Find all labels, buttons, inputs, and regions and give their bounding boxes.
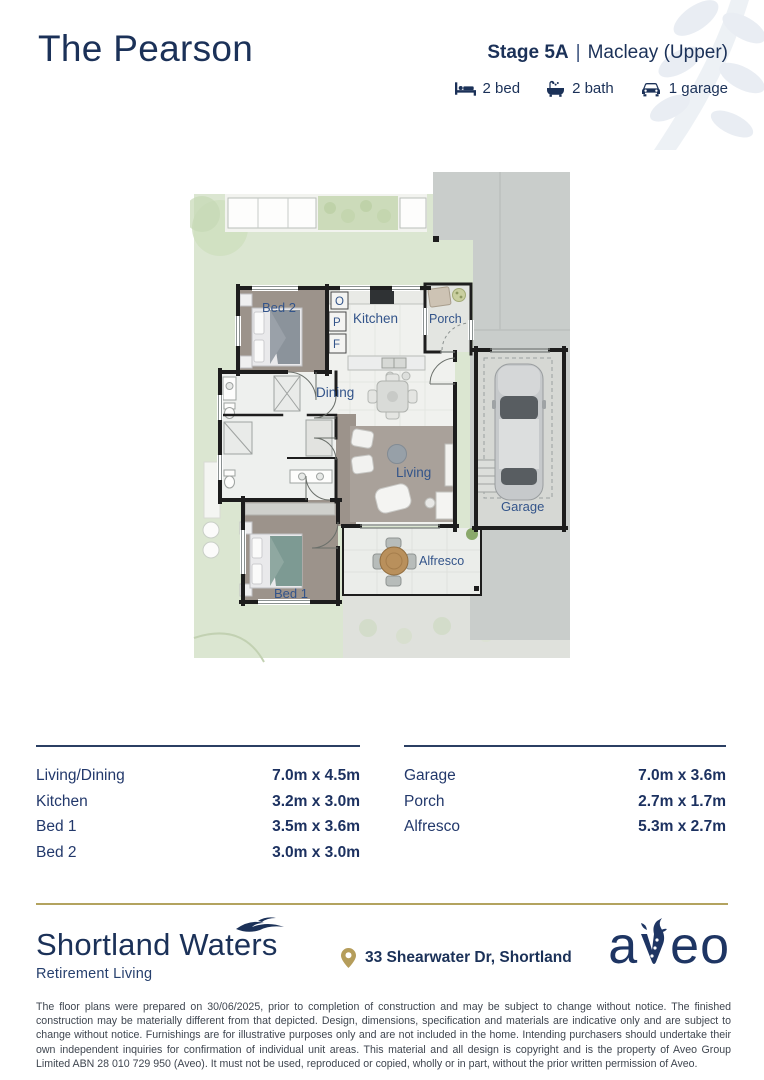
dim-size: 7.0m x 4.5m [272, 767, 360, 785]
stage-label: Stage 5A [487, 42, 568, 63]
dimensions-left-column: Living/Dining 7.0m x 4.5m Kitchen 3.2m x… [36, 745, 360, 869]
dim-size: 5.3m x 2.7m [638, 818, 726, 836]
floor-plan: Bed 2 Kitchen Porch Dining Living Bed 1 … [190, 170, 572, 666]
stage-variant-line: Stage 5A|Macleay (Upper) [487, 42, 728, 64]
car-icon [640, 81, 662, 97]
feature-bed-label: 2 bed [483, 80, 521, 97]
dim-room: Garage [404, 767, 456, 785]
dim-size: 3.2m x 3.0m [272, 793, 360, 811]
bed-icon [455, 81, 476, 97]
disclaimer-text: The floor plans were prepared on 30/06/2… [36, 1000, 731, 1071]
feature-bath-label: 2 bath [572, 80, 614, 97]
feature-garage: 1 garage [640, 80, 728, 97]
boundary-window [228, 198, 316, 228]
dim-row: Porch 2.7m x 1.7m [404, 793, 726, 819]
label-kitchen: Kitchen [353, 311, 398, 326]
feature-garage-label: 1 garage [669, 80, 728, 97]
variant-label: Macleay (Upper) [588, 42, 728, 63]
dim-room: Bed 1 [36, 818, 77, 836]
dimensions-right-column: Garage 7.0m x 3.6m Porch 2.7m x 1.7m Alf… [404, 745, 726, 844]
divider-rule [404, 745, 726, 747]
label-porch: Porch [429, 312, 462, 326]
bath-icon [546, 80, 565, 97]
dim-room: Living/Dining [36, 767, 125, 785]
feature-row: 2 bed 2 bath 1 garage [455, 80, 728, 97]
divider-rule [36, 745, 360, 747]
boundary-window [400, 198, 426, 228]
label-pantry: P [333, 317, 341, 329]
label-alfresco: Alfresco [419, 554, 464, 568]
label-garage: Garage [501, 499, 544, 514]
dim-row: Living/Dining 7.0m x 4.5m [36, 767, 360, 793]
leaf-watermark [584, 0, 764, 150]
feature-bath: 2 bath [546, 80, 614, 97]
dim-room: Kitchen [36, 793, 88, 811]
community-tagline: Retirement Living [36, 966, 278, 982]
dim-size: 2.7m x 1.7m [638, 793, 726, 811]
address-row: 33 Shearwater Dr, Shortland [341, 948, 572, 968]
dim-row: Alfresco 5.3m x 2.7m [404, 818, 726, 844]
label-oven: O [335, 296, 344, 308]
gold-divider [36, 903, 728, 905]
location-pin-icon [341, 948, 356, 968]
brand-leaf-v-icon [637, 916, 671, 970]
label-bed1: Bed 1 [274, 586, 308, 601]
dim-row: Kitchen 3.2m x 3.0m [36, 793, 360, 819]
brand-a: a [608, 920, 638, 972]
label-fridge: F [333, 339, 340, 351]
bird-swoosh-icon [234, 915, 286, 935]
dim-size: 7.0m x 3.6m [638, 767, 726, 785]
label-bed2: Bed 2 [262, 300, 296, 315]
stage-divider: | [576, 42, 581, 63]
dim-row: Bed 2 3.0m x 3.0m [36, 844, 360, 870]
dim-row: Garage 7.0m x 3.6m [404, 767, 726, 793]
label-living: Living [396, 465, 431, 480]
dim-size: 3.5m x 3.6m [272, 818, 360, 836]
dim-room: Bed 2 [36, 844, 77, 862]
community-logo: Shortland Waters Retirement Living [36, 927, 278, 982]
brand-logo: a eo [608, 916, 730, 972]
page-title: The Pearson [38, 28, 253, 70]
label-dining: Dining [316, 385, 354, 400]
community-name: Shortland Waters [36, 927, 278, 963]
feature-bed: 2 bed [455, 80, 521, 97]
dim-row: Bed 1 3.5m x 3.6m [36, 818, 360, 844]
dim-room: Porch [404, 793, 445, 811]
dim-room: Alfresco [404, 818, 460, 836]
car [492, 364, 546, 500]
brand-eo: eo [670, 920, 730, 972]
address-text: 33 Shearwater Dr, Shortland [365, 949, 572, 967]
dim-size: 3.0m x 3.0m [272, 844, 360, 862]
